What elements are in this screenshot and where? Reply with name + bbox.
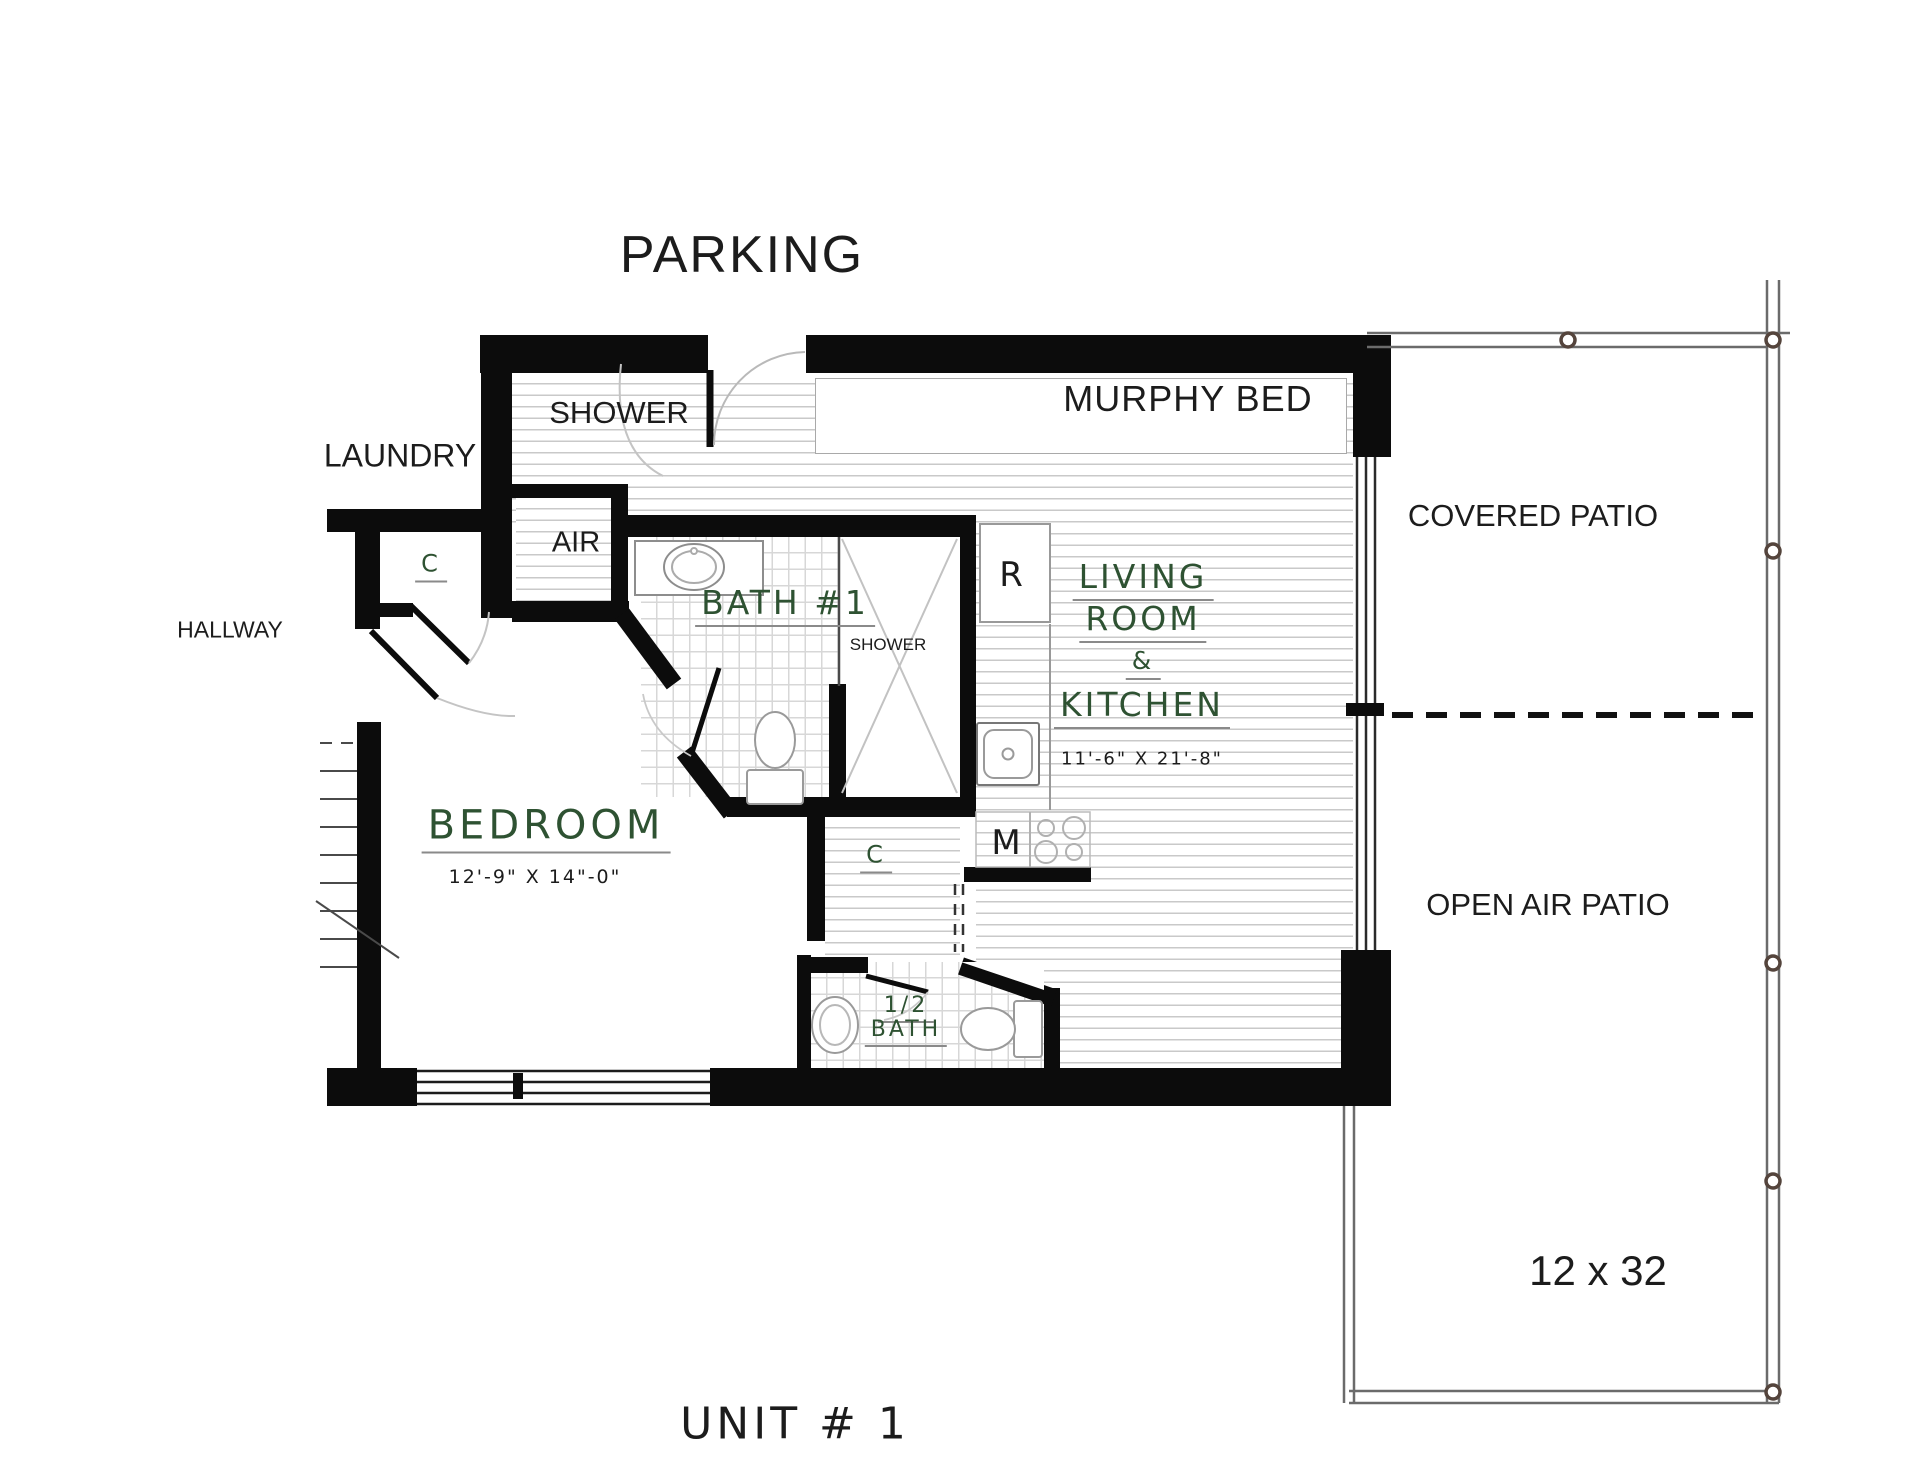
pedestal-sink-icon — [812, 997, 858, 1053]
room-label-murphy-bed: MURPHY BED — [1063, 378, 1312, 420]
fridge-label: R — [999, 555, 1025, 595]
bedroom-dimension: 12'-9" X 14"-0" — [449, 866, 622, 888]
patio-label-open-air: OPEN AIR PATIO — [1426, 887, 1669, 923]
unit-title: UNIT # 1 — [680, 1399, 910, 1450]
pocket-door-dashed — [955, 884, 963, 952]
shower-label-small: SHOWER — [850, 635, 927, 655]
closet-label-lower: C — [860, 841, 892, 874]
toilet-icon — [747, 712, 803, 804]
walk-in-shower-icon — [839, 537, 957, 793]
room-label-shower: SHOWER — [549, 395, 689, 431]
parking-label: PARKING — [620, 225, 864, 285]
room-label-laundry: LAUNDRY — [324, 438, 476, 475]
closet-door — [411, 606, 489, 663]
floor-plan: PARKING LAUNDRY SHOWER AIR HALLWAY MURPH… — [0, 0, 1920, 1482]
room-label-air: AIR — [552, 527, 600, 560]
room-label-hallway: HALLWAY — [177, 617, 283, 644]
room-label-half-bath-2: BATH — [865, 1017, 947, 1047]
room-label-living-1: LIVING — [1073, 557, 1214, 601]
window — [417, 1071, 710, 1104]
room-label-living-3: & — [1126, 646, 1161, 680]
entry-door — [710, 352, 805, 447]
patio-dimension: 12 x 32 — [1529, 1247, 1667, 1295]
room-label-bedroom: BEDROOM — [422, 803, 671, 854]
stairs-icon — [316, 743, 399, 967]
living-kitchen-dimension: 11'-6" X 21'-8" — [1061, 749, 1223, 770]
window — [1346, 457, 1384, 950]
kitchen-sink-icon — [977, 723, 1039, 785]
room-label-living-2: ROOM — [1079, 599, 1206, 643]
closet-label-upper: C — [415, 550, 447, 583]
patio-rail — [1344, 280, 1790, 1403]
room-label-bath1: BATH #1 — [695, 583, 875, 627]
bedroom-door — [371, 631, 515, 716]
toilet-icon — [961, 1001, 1042, 1057]
bath1-door — [643, 668, 719, 756]
microwave-label: M — [991, 823, 1022, 863]
patio-post-icon — [1561, 333, 1780, 1399]
room-label-living-4: KITCHEN — [1054, 685, 1230, 729]
patio-label-covered: COVERED PATIO — [1408, 498, 1658, 534]
